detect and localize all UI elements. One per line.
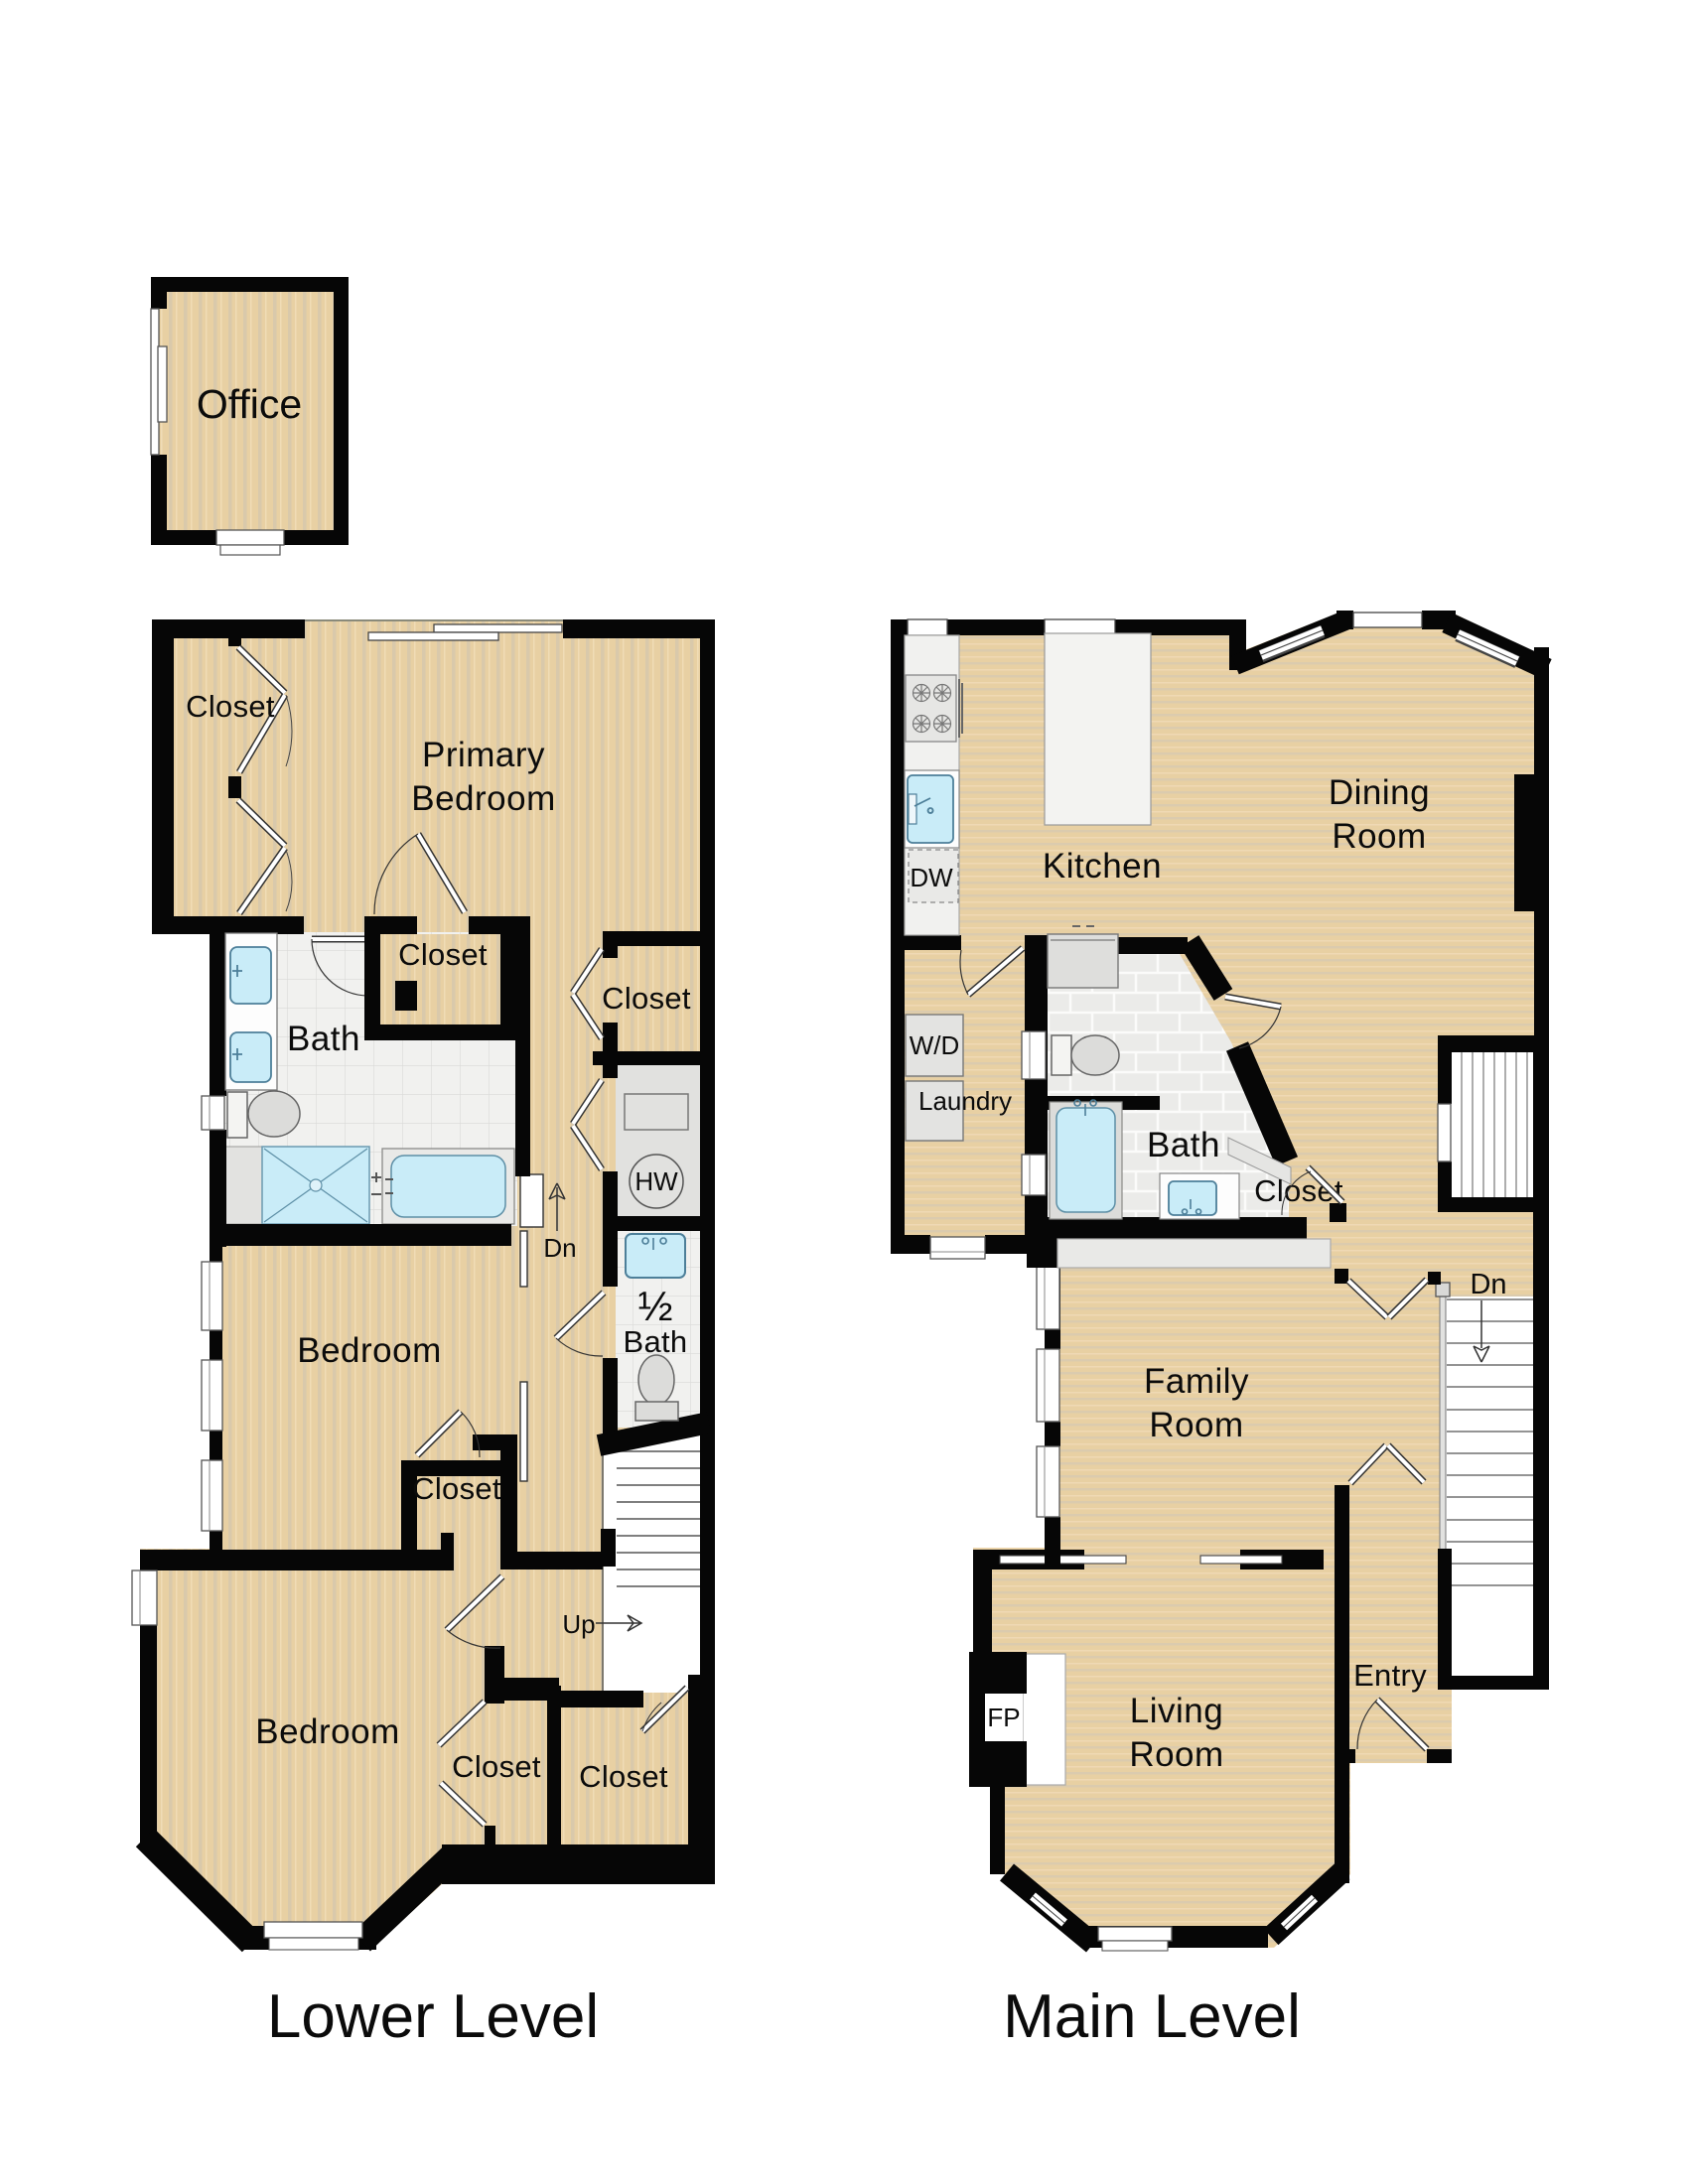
- svg-text:Main Level: Main Level: [1003, 1982, 1301, 2051]
- svg-text:Room: Room: [1149, 1406, 1243, 1444]
- svg-text:FP: FP: [987, 1703, 1020, 1732]
- svg-text:Primary: Primary: [422, 736, 545, 774]
- svg-text:HW: HW: [634, 1166, 678, 1196]
- svg-text:W/D: W/D: [910, 1030, 960, 1060]
- svg-text:DW: DW: [910, 863, 953, 892]
- svg-text:Closet: Closet: [579, 1759, 668, 1794]
- svg-text:Room: Room: [1332, 817, 1426, 856]
- svg-text:Bedroom: Bedroom: [411, 779, 556, 818]
- svg-text:Room: Room: [1129, 1735, 1223, 1774]
- svg-text:Living: Living: [1130, 1692, 1223, 1730]
- svg-text:Closet: Closet: [186, 689, 275, 724]
- svg-text:Bedroom: Bedroom: [255, 1712, 400, 1751]
- svg-text:Lower Level: Lower Level: [267, 1982, 599, 2051]
- svg-text:Bedroom: Bedroom: [297, 1331, 442, 1370]
- svg-text:Dn: Dn: [543, 1233, 576, 1263]
- svg-text:Family: Family: [1144, 1362, 1249, 1401]
- svg-text:Closet: Closet: [412, 1471, 501, 1506]
- svg-text:Entry: Entry: [1353, 1658, 1427, 1693]
- svg-text:Up: Up: [562, 1609, 595, 1639]
- svg-text:Bath: Bath: [287, 1020, 360, 1058]
- svg-text:Closet: Closet: [452, 1749, 541, 1784]
- svg-text:Office: Office: [197, 381, 302, 427]
- svg-text:Bath: Bath: [624, 1324, 688, 1359]
- svg-text:Kitchen: Kitchen: [1043, 847, 1162, 886]
- svg-text:Dn: Dn: [1470, 1269, 1506, 1300]
- svg-text:½: ½: [637, 1283, 672, 1329]
- svg-text:Closet: Closet: [398, 937, 488, 972]
- svg-text:Laundry: Laundry: [918, 1086, 1012, 1116]
- svg-text:Closet: Closet: [602, 981, 691, 1016]
- svg-text:Bath: Bath: [1147, 1126, 1220, 1164]
- svg-text:Dining: Dining: [1329, 773, 1430, 812]
